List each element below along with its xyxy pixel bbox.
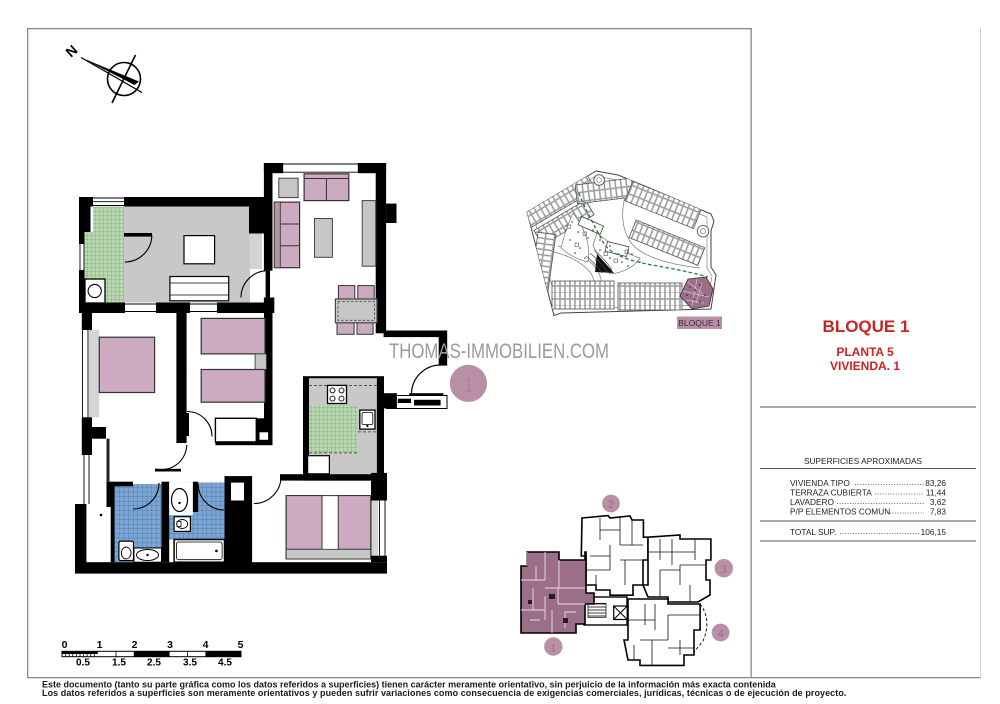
svg-text:LAVADERO: LAVADERO [790,497,835,507]
svg-text:0.5: 0.5 [76,658,90,669]
svg-text:1.5: 1.5 [112,658,126,669]
svg-text:3.5: 3.5 [183,658,197,669]
svg-text:SUPERFICIES APROXIMADAS: SUPERFICIES APROXIMADAS [804,456,922,466]
svg-text:0: 0 [62,639,68,651]
svg-text:2.5: 2.5 [147,658,161,669]
svg-text:2: 2 [132,639,138,651]
svg-text:4: 4 [203,639,209,651]
svg-text:P/P ELEMENTOS COMUN: P/P ELEMENTOS COMUN [790,507,890,517]
svg-text:1: 1 [97,639,103,651]
svg-text:VIVIENDA. 1: VIVIENDA. 1 [830,359,900,373]
svg-text:TERRAZA CUBIERTA: TERRAZA CUBIERTA [790,488,872,498]
svg-text:1: 1 [463,372,474,397]
svg-text:BLOQUE 1: BLOQUE 1 [823,317,910,336]
svg-text:PLANTA 5: PLANTA 5 [836,345,894,359]
svg-text:4: 4 [718,628,724,640]
svg-text:TOTAL SUP.: TOTAL SUP. [790,527,836,537]
svg-text:3: 3 [167,639,173,651]
svg-text:106,15: 106,15 [921,527,947,537]
svg-text:THOMAS-IMMOBILIEN.COM: THOMAS-IMMOBILIEN.COM [389,340,609,363]
svg-text:7,83: 7,83 [930,507,947,517]
svg-text:3: 3 [721,564,727,576]
svg-text:11,44: 11,44 [926,488,947,498]
svg-text:83,26: 83,26 [925,478,946,488]
svg-text:5: 5 [238,639,244,651]
svg-text:VIVIENDA TIPO: VIVIENDA TIPO [790,478,850,488]
svg-text:1: 1 [550,643,556,655]
svg-text:2: 2 [608,499,614,511]
svg-text:4.5: 4.5 [218,658,232,669]
svg-text:3,62: 3,62 [930,497,947,507]
svg-text:BLOQUE 1: BLOQUE 1 [678,318,721,328]
svg-text:Los datos referidos a superfic: Los datos referidos a superficies son me… [42,688,846,698]
